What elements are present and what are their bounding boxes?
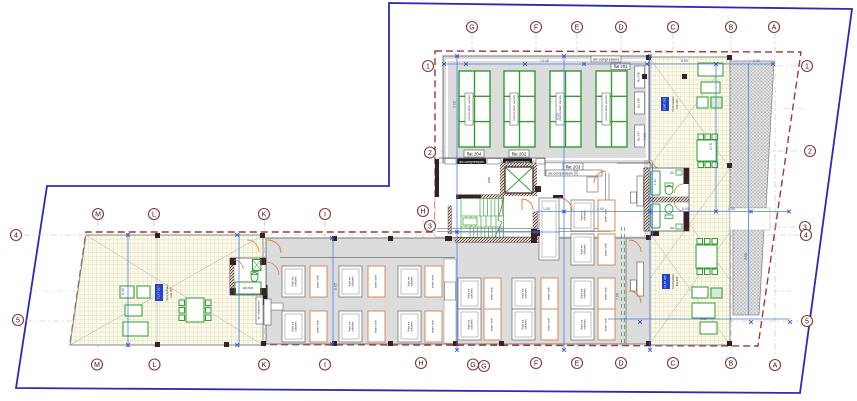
svg-text:4.40: 4.40 <box>597 207 604 211</box>
svg-text:3.02: 3.02 <box>453 101 457 108</box>
svg-text:flat 203: flat 203 <box>566 165 581 170</box>
svg-text:4: 4 <box>804 233 808 240</box>
svg-text:5.90: 5.90 <box>682 207 689 211</box>
svg-text:Flat 203: Flat 203 <box>675 99 679 109</box>
svg-text:M: M <box>95 212 101 219</box>
svg-text:D: D <box>618 25 623 32</box>
svg-text:3: 3 <box>803 225 807 232</box>
svg-text:4.30: 4.30 <box>700 317 707 321</box>
svg-text:E: E <box>575 361 580 368</box>
svg-text:Roof Garden: Roof Garden <box>671 96 675 111</box>
svg-text:C: C <box>670 25 675 32</box>
svg-text:13.48: 13.48 <box>540 59 549 63</box>
svg-text:Flat 207: Flat 207 <box>169 287 173 298</box>
svg-text:No.147: No.147 <box>637 131 641 141</box>
svg-text:photovoltaic panels: photovoltaic panels <box>512 95 516 121</box>
svg-text:8.46: 8.46 <box>121 288 125 295</box>
svg-text:M: M <box>94 362 100 369</box>
svg-text:Roof Garden: Roof Garden <box>671 274 675 289</box>
svg-text:5: 5 <box>16 318 20 325</box>
svg-text:F: F <box>534 361 538 368</box>
svg-text:5: 5 <box>805 319 809 326</box>
svg-text:B: B <box>729 25 734 32</box>
svg-text:6.00: 6.00 <box>681 59 688 63</box>
svg-text:ΔΔ: ΔΔ <box>670 226 674 230</box>
svg-text:FLAT 203: FLAT 203 <box>663 98 667 110</box>
svg-text:A: A <box>773 363 778 370</box>
svg-text:L: L <box>152 212 156 219</box>
svg-text:photovoltaic panels: photovoltaic panels <box>604 95 608 121</box>
svg-text:7.26: 7.26 <box>616 293 620 300</box>
svg-text:3.60: 3.60 <box>744 253 748 260</box>
svg-text:D: D <box>618 361 623 368</box>
svg-text:1: 1 <box>426 64 430 71</box>
svg-text:flat 204: flat 204 <box>467 152 482 157</box>
svg-text:G: G <box>469 25 474 32</box>
svg-text:No.145: No.145 <box>637 72 641 82</box>
svg-text:Flat 206: Flat 206 <box>675 276 679 286</box>
svg-text:H: H <box>418 361 423 368</box>
svg-text:No.146: No.146 <box>637 98 641 108</box>
svg-text:water tank: water tank <box>316 274 320 288</box>
svg-text:2: 2 <box>428 150 432 157</box>
svg-text:4: 4 <box>14 233 18 240</box>
svg-text:A: A <box>772 25 777 32</box>
svg-text:K: K <box>262 362 267 369</box>
svg-text:3.40: 3.40 <box>497 228 504 232</box>
svg-text:cylinders: cylinders <box>294 276 298 287</box>
svg-text:1.30: 1.30 <box>728 207 735 211</box>
svg-text:G: G <box>470 362 475 369</box>
svg-text:C: C <box>670 361 675 368</box>
svg-text:1.50: 1.50 <box>543 207 550 211</box>
svg-text:K: K <box>262 212 267 219</box>
svg-text:flat 202: flat 202 <box>512 152 527 157</box>
svg-text:9.02: 9.02 <box>556 113 560 120</box>
svg-text:1.40: 1.40 <box>753 59 760 63</box>
svg-text:flat 201: flat 201 <box>614 64 628 69</box>
svg-text:2: 2 <box>808 149 812 156</box>
svg-text:B: B <box>729 361 734 368</box>
svg-text:a/c compressors: a/c compressors <box>593 58 620 62</box>
svg-text:3: 3 <box>428 224 432 231</box>
svg-text:I: I <box>324 212 326 219</box>
svg-text:L: L <box>153 362 157 369</box>
svg-text:4.78: 4.78 <box>709 143 713 150</box>
svg-text:1: 1 <box>805 64 809 71</box>
svg-text:FLAT 207: FLAT 207 <box>157 286 161 299</box>
svg-text:a/c compressors: a/c compressors <box>548 172 573 176</box>
svg-text:FLAT 206: FLAT 206 <box>663 275 667 287</box>
svg-text:a/c compressors: a/c compressors <box>257 300 261 320</box>
svg-text:5.43: 5.43 <box>230 288 234 295</box>
svg-text:7.26: 7.26 <box>643 133 647 140</box>
svg-text:WA WR: WA WR <box>243 286 254 290</box>
svg-text:pool: pool <box>487 177 491 183</box>
svg-text:G: G <box>481 364 486 371</box>
svg-text:photovoltaic panels: photovoltaic panels <box>467 95 471 121</box>
svg-text:1.98: 1.98 <box>653 179 657 185</box>
svg-text:E: E <box>575 25 580 32</box>
svg-text:8.65: 8.65 <box>334 283 338 290</box>
svg-text:F: F <box>534 25 538 32</box>
svg-text:H: H <box>420 209 425 216</box>
svg-text:a/c compressors: a/c compressors <box>459 160 484 164</box>
svg-text:ΔΔ: ΔΔ <box>670 171 674 175</box>
svg-text:I: I <box>324 362 326 369</box>
